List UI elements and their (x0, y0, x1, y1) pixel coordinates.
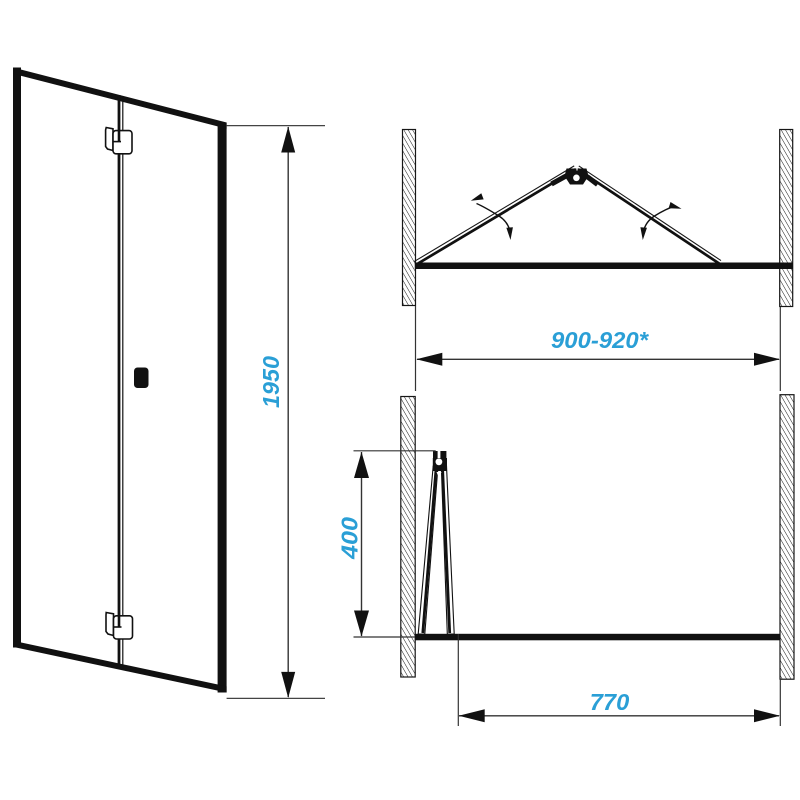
svg-text:400: 400 (337, 517, 363, 560)
svg-text:770: 770 (590, 689, 630, 715)
svg-text:1950: 1950 (258, 356, 284, 408)
svg-text:900-920*: 900-920* (551, 327, 649, 353)
